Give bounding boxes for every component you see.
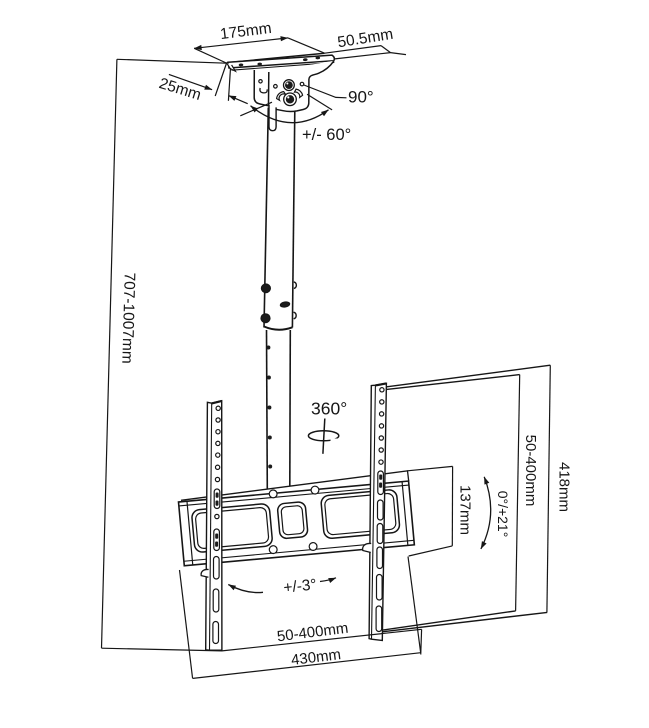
svg-text:707-1007mm: 707-1007mm xyxy=(118,272,137,364)
svg-text:+/-3°: +/-3° xyxy=(283,576,318,596)
svg-text:418mm: 418mm xyxy=(556,462,573,512)
svg-text:137mm: 137mm xyxy=(457,485,474,535)
svg-text:+/- 60°: +/- 60° xyxy=(302,126,351,144)
svg-text:0°/+21°: 0°/+21° xyxy=(495,491,511,538)
svg-text:360°: 360° xyxy=(311,399,347,419)
svg-text:50-400mm: 50-400mm xyxy=(522,435,539,507)
svg-text:90°: 90° xyxy=(348,88,374,107)
